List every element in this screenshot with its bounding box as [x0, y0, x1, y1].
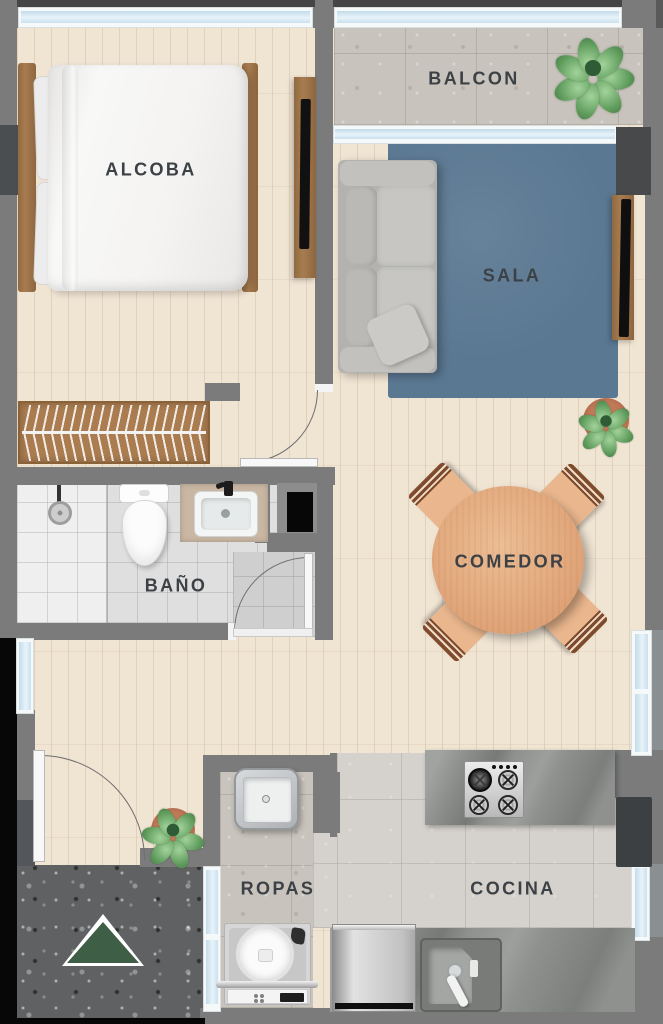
stove-burner: [498, 770, 518, 790]
washer-bar: [216, 981, 318, 988]
washer-display: [280, 993, 304, 1002]
room-label-ropas: ROPAS: [241, 879, 316, 900]
sliding-door-balcony: [333, 125, 617, 144]
shower-head: [48, 501, 72, 525]
sofa-armrest: [340, 161, 435, 186]
duct-shaft: [287, 492, 313, 532]
sofa: [338, 160, 437, 373]
laundry-sink: [234, 768, 299, 830]
room-label-sala: SALA: [483, 266, 542, 287]
room-label-bano: BAÑO: [145, 576, 208, 597]
wall-stub-alcoba: [205, 383, 240, 401]
window-hall-left: [16, 638, 34, 714]
sofa-back-cushion: [346, 186, 378, 266]
window-balcony: [334, 7, 622, 28]
bathroom-sink: [194, 491, 258, 537]
door-leaf-bathroom: [304, 553, 313, 634]
wall-right: [645, 28, 663, 632]
washer-control-panel: [227, 989, 308, 1004]
wall-behind-fridge: [652, 797, 663, 867]
refrigerator: [616, 797, 652, 867]
void-bottom-left: [17, 1018, 205, 1024]
stove-burner: [469, 795, 489, 815]
wall-bathroom-bottom: [0, 623, 233, 640]
toilet-flush-button: [139, 490, 150, 496]
wall-right-window-face-2: [648, 864, 663, 939]
stove-burner: [468, 768, 492, 792]
wall-alcoba-divider: [315, 0, 333, 392]
kitchen-sink: [420, 938, 502, 1012]
wall-bathroom-right: [315, 467, 333, 640]
wall-left: [0, 0, 17, 640]
stove-cooktop: [464, 761, 524, 818]
window-comedor-right: [631, 630, 652, 756]
wardrobe-hangers-bottom: [22, 434, 206, 461]
dishwasher: [332, 924, 416, 1012]
void-left-edge: [0, 638, 17, 1024]
room-label-comedor: COMEDOR: [455, 552, 566, 573]
tv-cabinet-sala: [616, 127, 651, 195]
stove-burner: [498, 795, 518, 815]
wardrobe-hangers-top: [22, 405, 206, 431]
washer-lid-cap: [258, 949, 273, 962]
door-leaf-entry: [33, 750, 45, 862]
wardrobe: [18, 401, 210, 464]
floor-plan: ALCOBA BALCON SALA BAÑO COMEDOR ROPAS CO…: [0, 0, 663, 1024]
wall-left-entry-block: [15, 800, 35, 866]
kitchen-faucet-sprayer: [470, 960, 478, 977]
kitchen-floor-strip: [313, 833, 337, 928]
window-alcoba: [18, 7, 313, 28]
door-threshold-bathroom: [233, 628, 313, 637]
room-label-balcon: BALCON: [428, 69, 519, 90]
wall-kitchen-left: [330, 753, 337, 837]
room-label-alcoba: ALCOBA: [105, 160, 196, 181]
room-label-cocina: COCINA: [470, 879, 555, 900]
sofa-seat-cushion: [377, 186, 435, 266]
bathroom-faucet: [224, 481, 233, 496]
wall-left-mid: [15, 710, 35, 802]
tv-alcoba: [299, 99, 311, 249]
glazing-laundry: [203, 866, 221, 1012]
wall-below-shaft: [267, 533, 317, 552]
wall-right-kitchen-top: [613, 750, 663, 798]
shower-divider: [106, 485, 108, 623]
door-leaf-alcoba: [240, 458, 318, 467]
wall-laundry-left: [203, 755, 220, 870]
